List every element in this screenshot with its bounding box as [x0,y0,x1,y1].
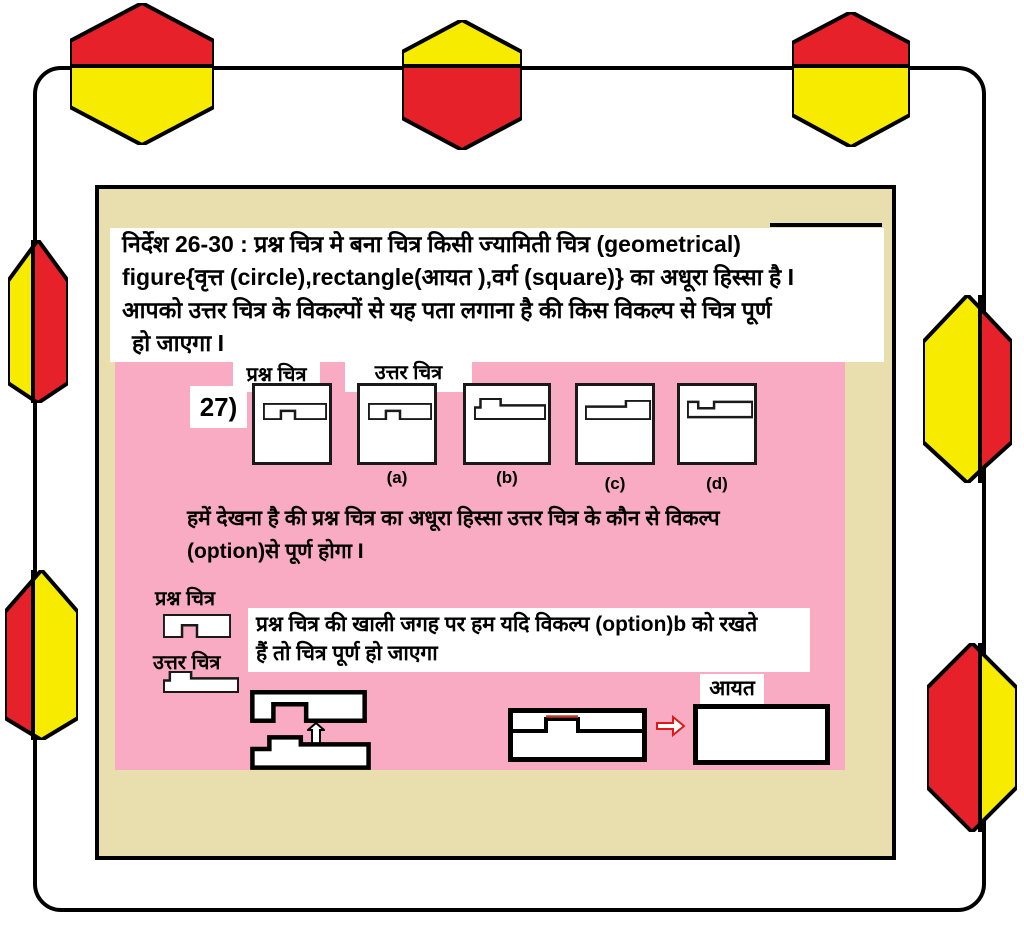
instruction-line-4: हो जाएगा I [110,327,884,360]
combined-figure [508,708,647,762]
worksheet-canvas: निर्देश 26-30 : प्रश्न चित्र मे बना चित्… [0,0,1024,942]
result-rectangle [693,704,830,765]
decor-hexagon-left-lower [5,570,78,740]
decor-hexagon-top-center [402,20,522,150]
solution-line-2: हैं तो चित्र पूर्ण हो जाएगा [256,639,810,668]
accent-line [770,223,882,227]
solution-note-box: प्रश्न चित्र की खाली जगह पर हम यदि विकल्… [248,608,810,672]
slide-panel: निर्देश 26-30 : प्रश्न चित्र मे बना चित्… [95,185,896,860]
answer-option-shape-a [368,403,432,420]
instruction-line-1: निर्देश 26-30 : प्रश्न चित्र मे बना चित्… [110,228,884,261]
instruction-box: निर्देश 26-30 : प्रश्न चित्र मे बना चित्… [110,228,884,362]
answer-option-shape-d [687,400,753,419]
instruction-line-3: आपको उत्तर चित्र के विकल्पों से यह पता ल… [110,294,884,327]
answer-option-box-a [357,383,437,465]
observation-text: हमें देखना है की प्रश्न चित्र का अधूरा ह… [187,502,720,568]
right-arrow-icon [656,714,686,738]
observation-line-1: हमें देखना है की प्रश्न चित्र का अधूरा ह… [187,502,720,535]
solution-line-1: प्रश्न चित्र की खाली जगह पर हम यदि विकल्… [256,610,810,639]
question-area-panel: प्रश्न चित्र उत्तर चित्र 27) (a) [115,362,845,770]
answer-piece-shape [163,671,239,693]
instruction-line-2: figure{वृत्त (circle),rectangle(आयत ),वर… [110,261,884,294]
answer-option-shape-b [474,398,546,420]
answer-option-box-c [575,383,655,465]
decor-hexagon-top-left [70,3,214,145]
assembly-answer-piece [250,735,371,770]
answer-option-box-b [463,383,551,465]
result-shape-label: आयत [700,674,764,704]
decor-hexagon-left-upper [8,240,68,403]
answer-option-label-c: (c) [575,474,655,494]
decor-hexagon-top-right [792,12,910,147]
decor-hexagon-right-upper [923,295,1012,483]
answer-option-label-d: (d) [677,474,757,494]
question-figure-shape [263,403,327,420]
question-number: 27) [190,386,247,428]
question-piece-shape [163,614,231,638]
assembly-question-piece [250,690,367,723]
answer-option-label-a: (a) [357,468,437,488]
answer-option-shape-c [585,400,651,420]
question-piece-label: प्रश्न चित्र [155,584,215,611]
decor-hexagon-right-lower [927,643,1017,832]
observation-line-2: (option)से पूर्ण होगा I [187,535,720,568]
answer-option-box-d [677,383,757,465]
question-figure-box [252,383,332,465]
answer-option-label-b: (b) [463,468,551,488]
